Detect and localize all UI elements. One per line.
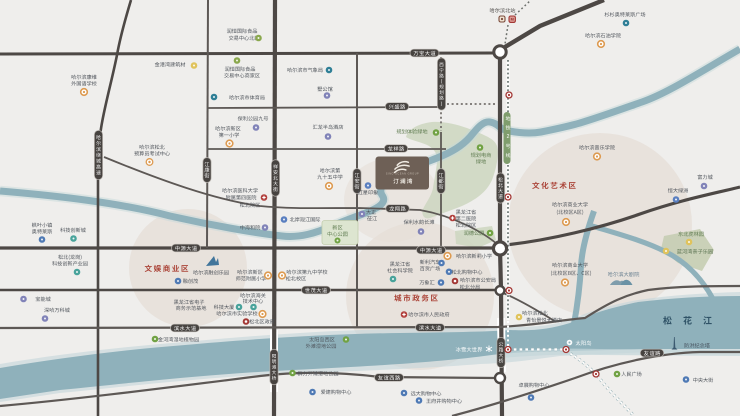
- svg-text:M: M: [511, 17, 514, 21]
- svg-text:SINO OCEAN GROUP: SINO OCEAN GROUP: [386, 172, 419, 175]
- svg-text:2: 2: [507, 134, 510, 140]
